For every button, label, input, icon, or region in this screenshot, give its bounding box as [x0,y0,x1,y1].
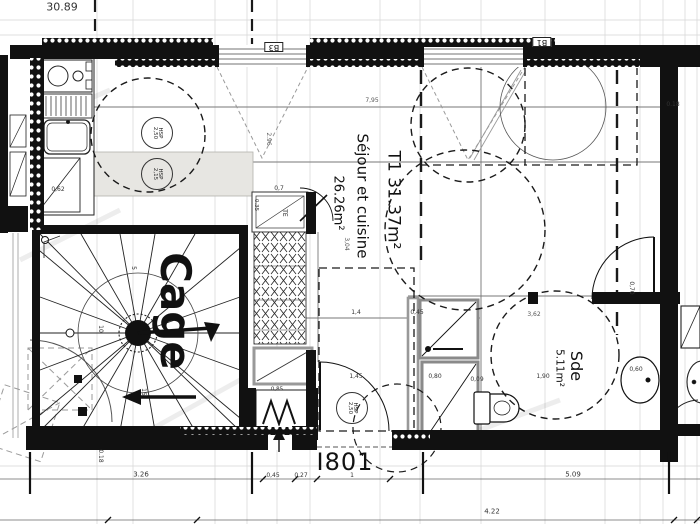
dim-018-bottom: 0.18 [97,449,103,462]
stair-step-5: 5 [130,266,136,270]
dim-326: 3.26 [133,472,149,479]
dim-027: 0,27 [294,473,307,479]
dim-shaft-door: 0,7 [274,186,284,192]
window-b3 [213,45,312,67]
dim-14: 1,4 [351,310,361,316]
dim-085: 0,85 [271,387,283,393]
dim-362: 3,62 [527,312,540,318]
dim-room-width: 7,95 [365,98,378,104]
toilet-tank [474,392,490,424]
dim-080: 0,80 [428,374,441,380]
dim-145: 1,45 [349,374,362,380]
partition-wall [408,298,418,445]
dim-045-door: 0,45 [266,473,279,479]
shaft-fixtures [252,192,312,430]
bathroom-door-swing [592,237,654,299]
window-b1-tag: B1 [533,37,552,47]
floor-plan-page: T1 31.37m² Séjour et cuisine 26.26m² Cag… [0,0,700,524]
hsp-marker-entry: HSP 2,50 [336,392,368,424]
stairwell-label: Cage [154,252,196,370]
bathroom-fixtures [408,298,659,445]
floor-plan-drawing [0,0,700,524]
drainboard [42,94,92,118]
hsp-marker-kitchen-lower: HSP 2,15 [141,158,173,190]
dim-1: 1 [350,473,354,479]
dim-509: 5.09 [565,472,581,479]
stair-step-10: 10 [97,325,103,333]
dim-018-right: 0.18 [666,102,679,108]
stair-step-15: 15 [140,388,146,396]
apartment-type-label: T1 31.37m² [385,151,402,250]
dim-top-width: 30.89 [46,2,78,13]
dim-062: 0,62 [51,187,64,193]
dim-060: 0,60 [629,367,642,373]
hsp-value: 2,50 [347,402,353,414]
bathroom-label: Sde [568,351,584,381]
direction-arrow-down [204,322,220,342]
main-room-label: Séjour et cuisine [355,133,370,258]
washbasin [621,357,659,403]
window-b1 [418,45,529,67]
dim-304: 3,04 [343,237,349,250]
hsp-value: 2,50 [152,127,158,139]
dim-070: 0,70 [628,281,634,294]
bathroom-area-label: 5.11m² [554,349,565,387]
main-room-area-label: 26.26m² [332,175,345,230]
dim-035: 0.35 [252,199,258,211]
dim-009: 0,09 [470,377,483,383]
dim-422: 4.22 [484,509,500,516]
hsp-marker-kitchen-upper: HSP 2,50 [141,117,173,149]
hsp-value: 2,15 [152,168,158,180]
dim-045-sde: 0,45 [410,310,423,316]
window-b3-tag: B3 [265,42,284,52]
dim-296: 2.96 [265,132,271,145]
spiral-stair [40,234,240,431]
electrical-panel-label: TE [281,209,287,216]
dim-190: 1,90 [536,374,549,380]
unit-number-label: I801 [317,450,374,474]
